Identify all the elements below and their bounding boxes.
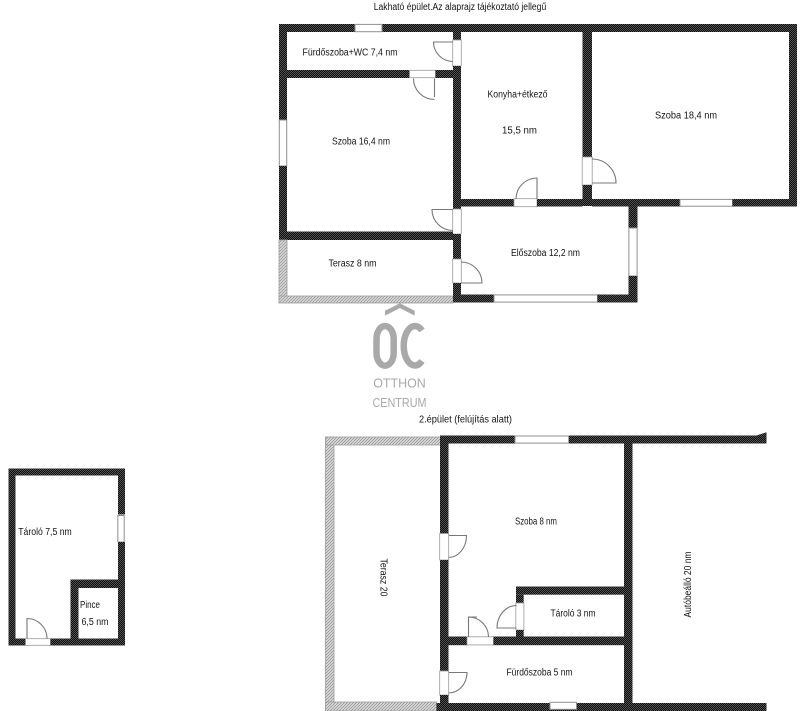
svg-text:CENTRUM: CENTRUM xyxy=(373,395,427,410)
svg-text:Autóbeálló 20 nm: Autóbeálló 20 nm xyxy=(683,552,694,618)
svg-text:2.épület (felújítás alatt): 2.épület (felújítás alatt) xyxy=(419,415,512,426)
svg-text:Terasz 20: Terasz 20 xyxy=(377,559,388,597)
svg-text:Szoba 18,4 nm: Szoba 18,4 nm xyxy=(655,110,717,121)
svg-text:Előszoba 12,2 nm: Előszoba 12,2 nm xyxy=(511,248,580,259)
svg-text:Konyha+étkező: Konyha+étkező xyxy=(488,89,548,100)
svg-text:Tároló 7,5 nm: Tároló 7,5 nm xyxy=(18,527,72,538)
svg-text:15,5 nm: 15,5 nm xyxy=(502,125,537,136)
svg-text:6,5 nm: 6,5 nm xyxy=(82,617,109,628)
svg-text:OTTHON: OTTHON xyxy=(373,376,426,391)
svg-text:Szoba 8 nm: Szoba 8 nm xyxy=(515,517,557,528)
svg-text:Pince: Pince xyxy=(80,600,100,611)
svg-text:Tároló 3 nm: Tároló 3 nm xyxy=(551,609,596,620)
svg-text:Lakható épület.Az alaprajz táj: Lakható épület.Az alaprajz tájékoztató j… xyxy=(374,2,547,13)
svg-text:Szoba 16,4 nm: Szoba 16,4 nm xyxy=(332,137,390,148)
svg-text:Terasz 8 nm: Terasz 8 nm xyxy=(329,258,377,269)
svg-text:Fürdőszoba 5 nm: Fürdőszoba 5 nm xyxy=(507,668,573,679)
svg-text:Fürdőszoba+WC 7,4 nm: Fürdőszoba+WC 7,4 nm xyxy=(303,48,398,59)
